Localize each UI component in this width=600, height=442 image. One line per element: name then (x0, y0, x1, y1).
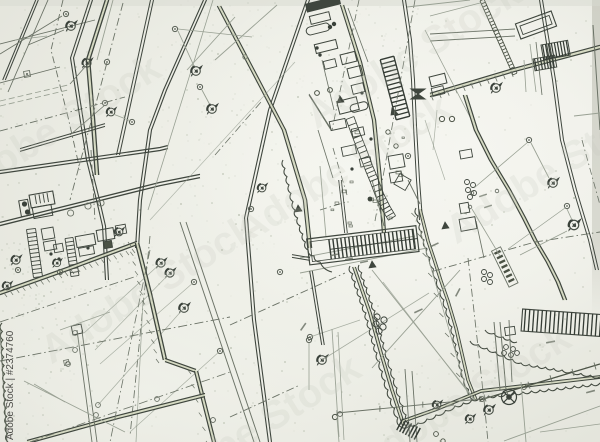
svg-text:Adobe Stock | #2374760: Adobe Stock | #2374760 (5, 330, 16, 440)
